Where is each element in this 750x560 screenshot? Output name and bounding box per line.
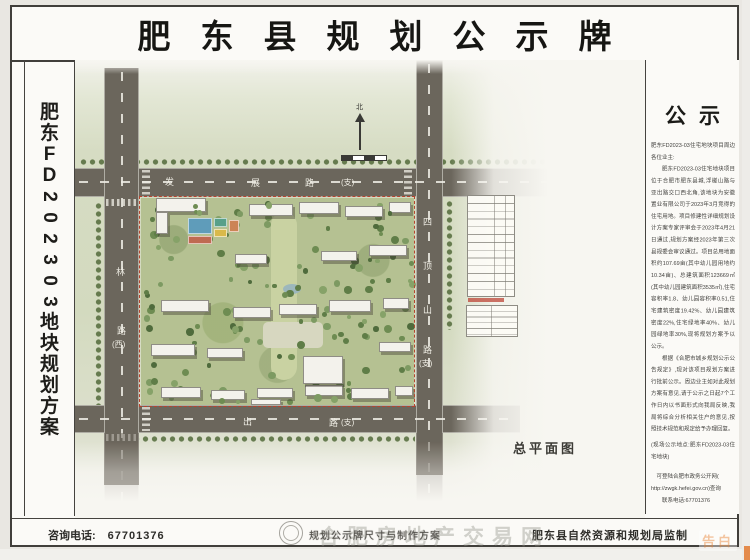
notice-body: 肥东FD2023-03住宅地块项目周边各位业主: 肥东FD2023-03住宅地块…: [651, 140, 735, 500]
vertical-char: 0: [39, 275, 60, 286]
project-vertical-title: 肥 东 F D 2 0 2 3 0 3 地 块 规 划 方 案: [25, 60, 74, 516]
table-caption-red: [468, 298, 504, 302]
vertical-char: 东: [40, 123, 59, 144]
photo-margin-right: [742, 0, 750, 560]
footer-center-note: 规划公示牌尺寸与制作方案: [309, 527, 441, 542]
vertical-char: D: [43, 165, 57, 186]
board-title: 肥东县规划公示牌: [108, 10, 642, 58]
public-notice-panel: 公示 肥东FD2023-03住宅地块项目周边各位业主: 肥东FD2023-03住…: [645, 60, 739, 514]
vertical-char: F: [44, 144, 56, 165]
vertical-char: 案: [40, 417, 59, 438]
crosswalk: [142, 170, 150, 195]
notice-query-line: 可登陆合肥市政务公开网(: [651, 471, 735, 483]
vertical-char: 地: [40, 312, 59, 333]
road-label: 路: [117, 324, 126, 337]
vertical-char: 块: [40, 333, 59, 354]
road-right: [416, 433, 443, 475]
site-boundary-redline: [139, 196, 415, 407]
title-bar: 肥东县规划公示牌: [12, 7, 737, 62]
north-arrow-icon: [355, 113, 365, 122]
notice-board-photo: 肥东县规划公示牌 肥 东 F D 2 0 2 3 0 3 地 块 规 划 方 案: [0, 0, 750, 560]
road-label: (支): [419, 358, 432, 369]
road-label: (支): [341, 417, 354, 428]
vertical-char: 3: [39, 296, 60, 307]
road-label: 展: [251, 176, 260, 189]
street-trees-row: [94, 202, 103, 412]
vertical-char: 方: [40, 396, 59, 417]
notice-site-note: (现场公示地点:肥东FD2023-03住宅地块): [651, 440, 735, 464]
watermark-corner-chip: [744, 546, 750, 560]
indicator-table: [466, 305, 518, 337]
footer-strip: 咨询电话:67701376 合肥房地产交易网 规划公示牌尺寸与制作方案 肥东县自…: [12, 519, 737, 547]
road-label: 山: [423, 303, 432, 316]
road-label: 路: [423, 343, 432, 356]
vertical-char: 规: [40, 354, 59, 375]
crosswalk: [404, 170, 412, 195]
road-label: 四: [423, 215, 432, 228]
notice-board: 肥东县规划公示牌 肥 东 F D 2 0 2 3 0 3 地 块 规 划 方 案: [10, 5, 739, 547]
road-label: 顶: [423, 259, 432, 272]
consult-phone: 咨询电话:67701376: [48, 527, 165, 543]
notice-paragraph: 肥东FD2023-03住宅地块项目位于合肥市肥东县城,浮槎山路与亚出路交口西北角…: [651, 164, 735, 353]
notice-contact-line: 联系电话:67701376: [651, 495, 735, 507]
notice-query-url: http://zwgk.hefei.gov.cn)查询: [651, 483, 735, 495]
photo-margin-bottom: [0, 549, 750, 560]
road-label: (支): [341, 177, 354, 188]
consult-phone-number: 67701376: [108, 530, 165, 542]
indicator-table: [467, 195, 515, 297]
road-label: (西): [112, 339, 125, 350]
road-label: 发: [165, 175, 174, 188]
map-caption: 总平面图: [513, 438, 577, 457]
stamp-icon: [279, 521, 303, 545]
road-left: [104, 433, 139, 485]
producer-credit: 肥东县自然资源和规划局监制: [532, 527, 688, 543]
crosswalk: [142, 407, 150, 431]
road-label: 路: [329, 416, 338, 429]
vertical-char: 3: [39, 254, 60, 265]
notice-paragraph: 根据《合肥市城乡规划公示公告规定》,现对该项目规划方案进行批前公示。周边业主如对…: [651, 353, 735, 436]
north-arrow-icon: [359, 122, 361, 150]
master-plan-map: 北 发 展 路 (支) 林 路 (西) 四 顶 山 路 (支) 出 路: [75, 60, 645, 518]
road-label: 路: [305, 176, 314, 189]
vertical-char: 肥: [40, 102, 59, 123]
north-arrow-label: 北: [356, 102, 363, 112]
vertical-char: 0: [39, 212, 60, 223]
road-label: 出: [243, 415, 252, 428]
crosswalk: [106, 199, 139, 206]
scale-bar: [341, 155, 387, 161]
vertical-char: 划: [40, 375, 59, 396]
notice-heading: 公示: [650, 100, 735, 130]
consult-phone-label: 咨询电话:: [48, 530, 96, 542]
notice-salutation: 肥东FD2023-03住宅地块项目周边各位业主:: [651, 140, 735, 164]
vertical-char: 2: [39, 191, 60, 202]
vertical-char: 2: [39, 233, 60, 244]
road-label: 林: [116, 265, 125, 278]
watermark-corner: 告白: [699, 530, 737, 551]
